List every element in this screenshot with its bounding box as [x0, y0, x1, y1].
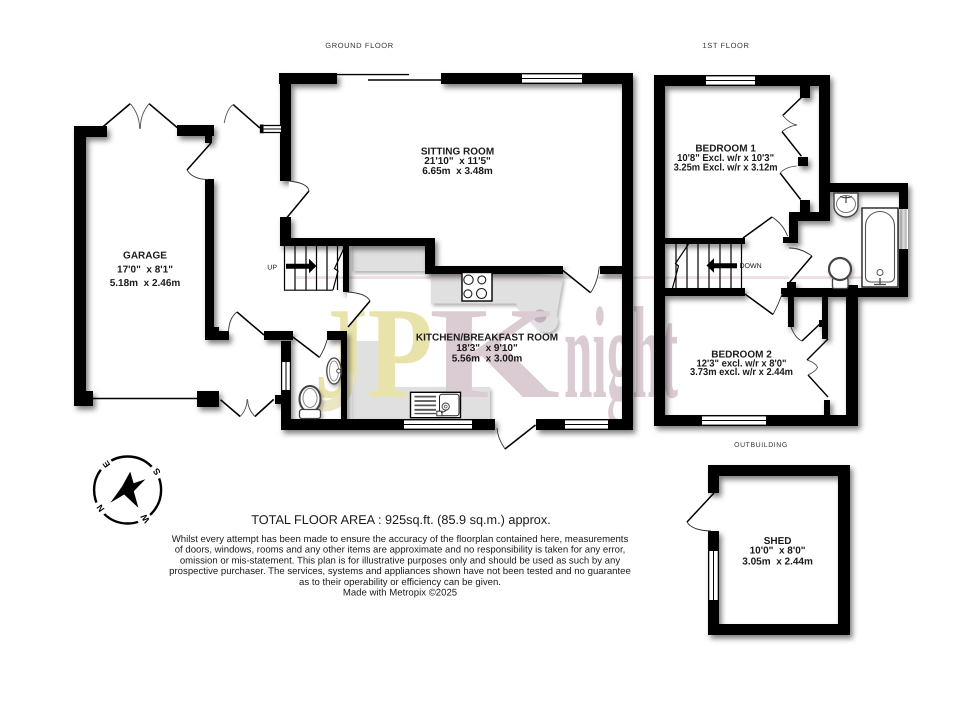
svg-text:17'0" x 8'1": 17'0" x 8'1": [117, 264, 173, 275]
svg-text:OUTBUILDING: OUTBUILDING: [734, 442, 788, 449]
svg-text:Whilst every attempt has been: Whilst every attempt has been made to en…: [172, 534, 629, 545]
svg-text:5.18m x 2.46m: 5.18m x 2.46m: [110, 278, 181, 289]
svg-text:6.65m x 3.48m: 6.65m x 3.48m: [422, 166, 493, 177]
svg-text:KITCHEN/BREAKFAST ROOM: KITCHEN/BREAKFAST ROOM: [416, 333, 558, 344]
svg-text:TOTAL FLOOR AREA : 925sq.ft. (: TOTAL FLOOR AREA : 925sq.ft. (85.9 sq.m.…: [251, 513, 550, 527]
svg-text:DOWN: DOWN: [740, 263, 762, 270]
svg-text:UP: UP: [267, 265, 277, 272]
svg-text:as to their operability or eff: as to their operability or efficiency ca…: [299, 577, 501, 588]
svg-text:10'0" x 8'0": 10'0" x 8'0": [750, 546, 806, 557]
svg-text:GARAGE: GARAGE: [123, 251, 167, 262]
svg-text:prospective purchaser. The ser: prospective purchaser. The services, sys…: [169, 566, 631, 577]
svg-text:5.56m x 3.00m: 5.56m x 3.00m: [452, 353, 523, 364]
svg-text:of doors, windows, rooms and a: of doors, windows, rooms and any other i…: [175, 545, 626, 556]
svg-text:3.05m x 2.44m: 3.05m x 2.44m: [742, 557, 813, 568]
svg-text:1ST FLOOR: 1ST FLOOR: [703, 41, 750, 50]
svg-text:3.73m excl. w/r x 2.44m: 3.73m excl. w/r x 2.44m: [690, 367, 793, 378]
svg-text:3.25m Excl. w/r x 3.12m: 3.25m Excl. w/r x 3.12m: [674, 162, 778, 173]
svg-text:Made with Metropix ©2025: Made with Metropix ©2025: [343, 588, 457, 599]
svg-text:GROUND FLOOR: GROUND FLOOR: [325, 41, 393, 50]
svg-text:omission or mis-statement. Thi: omission or mis-statement. This plan is …: [180, 555, 620, 566]
